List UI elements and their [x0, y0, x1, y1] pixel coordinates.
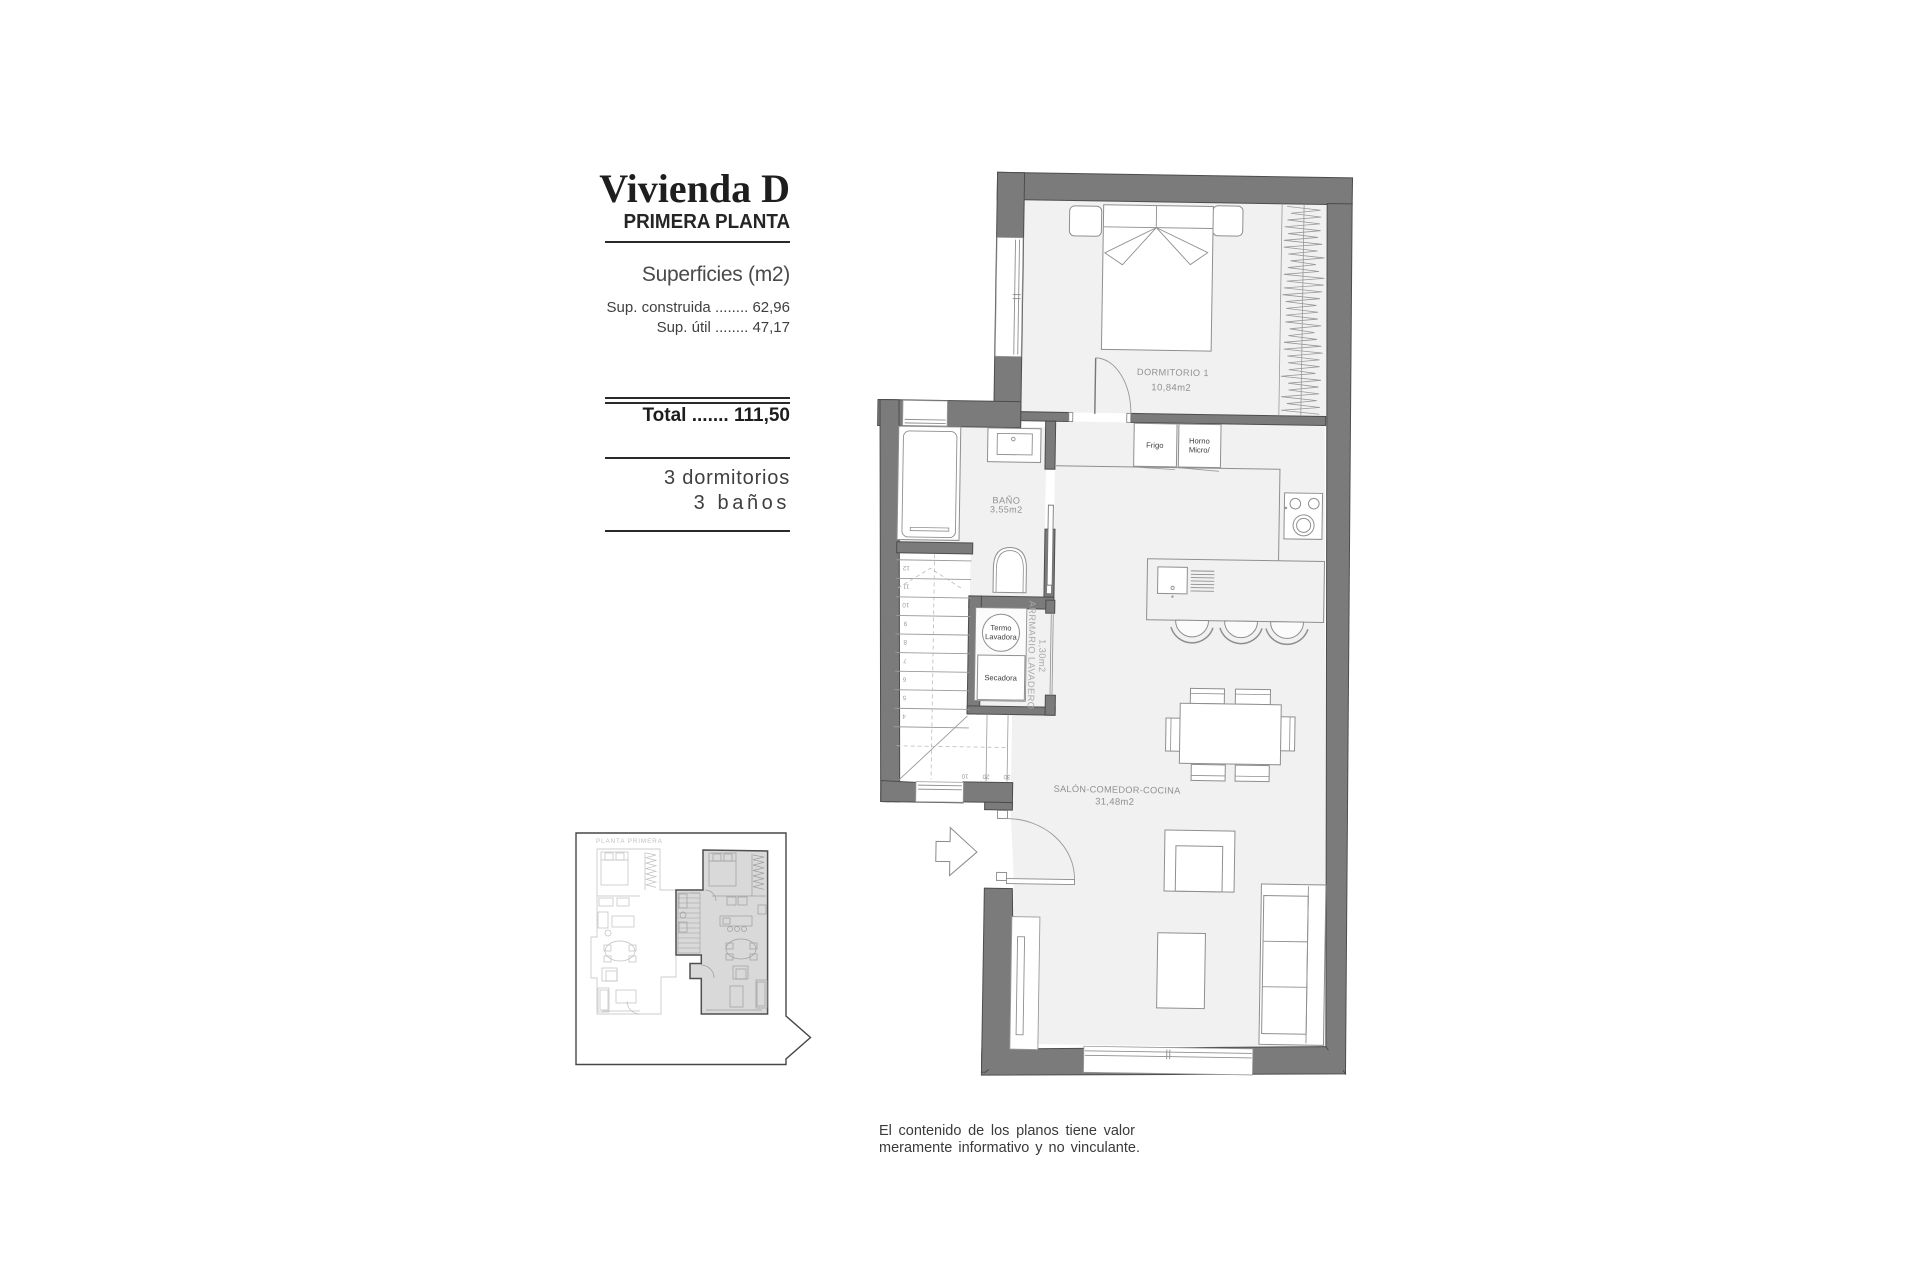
svg-text:11: 11: [902, 583, 909, 590]
svg-text:Lavadora: Lavadora: [985, 632, 1018, 642]
svg-text:Termo: Termo: [990, 623, 1011, 632]
svg-text:20: 20: [982, 773, 990, 780]
svg-text:30: 30: [1003, 773, 1011, 780]
svg-text:10: 10: [902, 601, 910, 608]
svg-text:7: 7: [903, 657, 907, 664]
svg-text:DORMITORIO 1: DORMITORIO 1: [1137, 367, 1209, 378]
svg-text:Micro/: Micro/: [1189, 445, 1211, 454]
svg-text:10: 10: [961, 772, 969, 779]
svg-text:1,30m2: 1,30m2: [1037, 639, 1048, 673]
svg-text:4: 4: [902, 712, 906, 719]
svg-text:SALÓN-COMEDOR-COCINA: SALÓN-COMEDOR-COCINA: [1054, 784, 1182, 796]
svg-text:Frigo: Frigo: [1146, 441, 1163, 450]
svg-text:PLANTA PRIMERA: PLANTA PRIMERA: [596, 838, 663, 845]
svg-text:9: 9: [903, 620, 907, 627]
svg-text:Horno: Horno: [1189, 436, 1210, 445]
svg-text:12: 12: [902, 564, 910, 571]
svg-text:Secadora: Secadora: [984, 673, 1017, 683]
svg-text:5: 5: [902, 694, 906, 701]
svg-text:10,84m2: 10,84m2: [1151, 382, 1191, 394]
svg-text:8: 8: [903, 638, 907, 645]
svg-text:3,55m2: 3,55m2: [990, 504, 1023, 515]
svg-text:ARRMARIO LAVADERO: ARRMARIO LAVADERO: [1026, 601, 1038, 710]
svg-text:31,48m2: 31,48m2: [1095, 796, 1134, 808]
svg-text:6: 6: [902, 675, 906, 682]
